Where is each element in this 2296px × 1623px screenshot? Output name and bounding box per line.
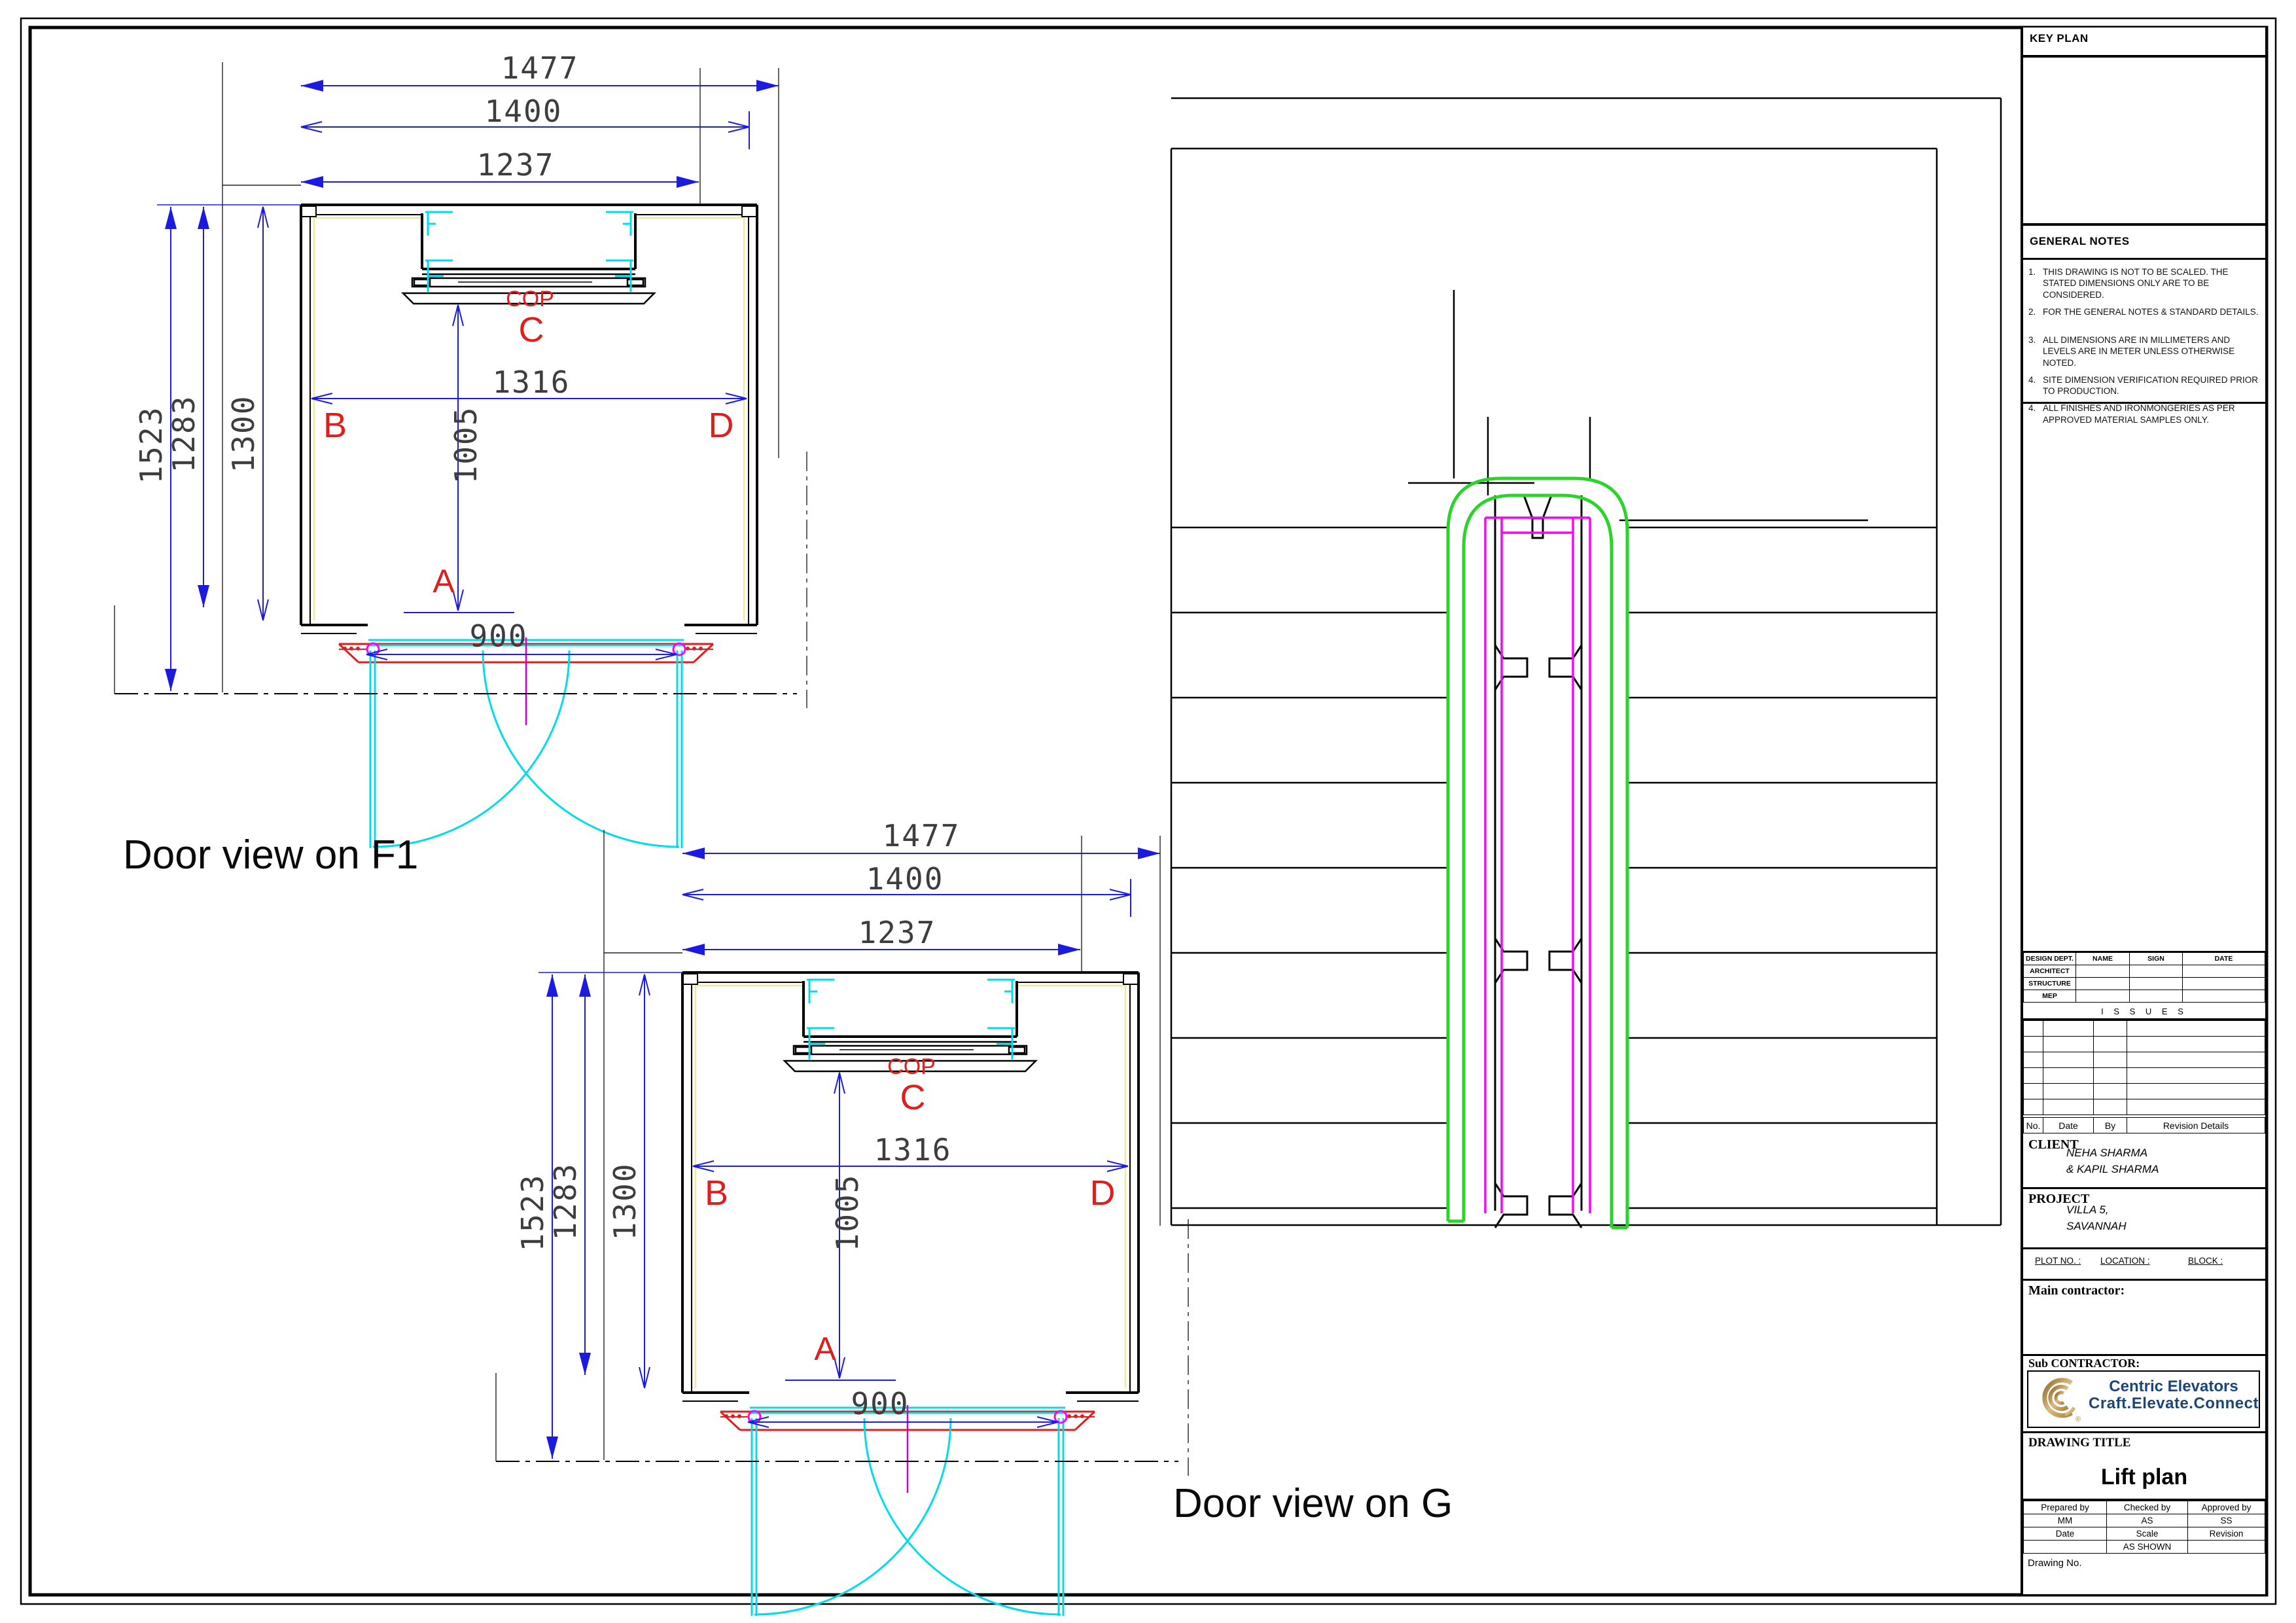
position-markers: COP C B D A bbox=[323, 287, 734, 599]
marker-cop: COP bbox=[506, 287, 554, 312]
drawing-sheet: 1477 1400 1237 1316 900 1523 1283 1300 1… bbox=[0, 0, 2296, 1623]
client-line2: & KAPIL SHARMA bbox=[2066, 1162, 2159, 1178]
cell-empty bbox=[2183, 965, 2265, 978]
col-sign: SIGN bbox=[2130, 953, 2183, 965]
cell-empty bbox=[2094, 1021, 2127, 1037]
prepared-by-value: MM bbox=[2024, 1514, 2107, 1527]
registered-mark: ® bbox=[2075, 1416, 2081, 1423]
stair-shaft-plan bbox=[1171, 98, 2001, 1228]
block-label: BLOCK : bbox=[2188, 1256, 2223, 1266]
col-date: DATE bbox=[2183, 953, 2265, 965]
rev-details-label: Revision Details bbox=[2127, 1118, 2265, 1133]
door-view-plan: 1477 1400 1237 1316 900 1523 1283 1300 1… bbox=[115, 50, 807, 848]
logo-line2: Craft.Elevate.Connect bbox=[2089, 1395, 2259, 1412]
dim-1316: 1316 bbox=[493, 365, 571, 400]
note-num: 2. bbox=[2028, 306, 2043, 317]
note-text: ALL DIMENSIONS ARE IN MILLIMETERS AND LE… bbox=[2043, 334, 2261, 368]
shaft-rail-magenta bbox=[1485, 518, 1590, 1213]
note-text: SITE DIMENSION VERIFICATION REQUIRED PRI… bbox=[2043, 374, 2261, 397]
sub-contractor-section: Sub CONTRACTOR: ® Centric Elevators bbox=[2023, 1356, 2265, 1433]
key-plan-box bbox=[2023, 58, 2265, 226]
cell-empty bbox=[2076, 978, 2130, 990]
note-text: THIS DRAWING IS NOT TO BE SCALED. THE ST… bbox=[2043, 266, 2261, 300]
cell-empty bbox=[2094, 1037, 2127, 1052]
door-view-g-instance bbox=[496, 818, 1188, 1616]
dim-1477: 1477 bbox=[501, 50, 579, 86]
plot-row: PLOT NO. : LOCATION : BLOCK : bbox=[2023, 1249, 2265, 1281]
cell-empty bbox=[2094, 1068, 2127, 1084]
cell-empty bbox=[2043, 1037, 2094, 1052]
cell-empty bbox=[2024, 1021, 2043, 1037]
view-title-g: Door view on G bbox=[1173, 1481, 1453, 1526]
marker-c: C bbox=[519, 310, 544, 349]
cell-empty bbox=[2183, 990, 2265, 1003]
note-num: 3. bbox=[2028, 334, 2043, 368]
row-architect: ARCHITECT bbox=[2024, 965, 2076, 978]
approved-by-label: Approved by bbox=[2188, 1501, 2265, 1514]
drawing-title-section: DRAWING TITLE Lift plan bbox=[2023, 1433, 2265, 1501]
cab-walls bbox=[301, 205, 757, 633]
general-notes-label: GENERAL NOTES bbox=[2023, 226, 2265, 248]
cell-empty bbox=[2043, 1068, 2094, 1084]
dim-1300: 1300 bbox=[226, 395, 261, 473]
checked-by-value: AS bbox=[2107, 1514, 2188, 1527]
drawing-no-section: Drawing No. bbox=[2023, 1554, 2265, 1592]
rev-date-label: Date bbox=[2043, 1118, 2094, 1133]
door-bracket-icons bbox=[425, 212, 633, 292]
cell-empty bbox=[2024, 1084, 2043, 1099]
col-design-dept: DESIGN DEPT. bbox=[2024, 953, 2076, 965]
extension-lines bbox=[115, 62, 807, 708]
cell-empty bbox=[2130, 990, 2183, 1003]
cad-canvas: 1477 1400 1237 1316 900 1523 1283 1300 1… bbox=[0, 0, 2296, 1623]
spare-box bbox=[2023, 404, 2265, 952]
scale-label: Scale bbox=[2107, 1527, 2188, 1541]
row-mep: MEP bbox=[2024, 990, 2076, 1003]
cell-empty bbox=[2043, 1052, 2094, 1068]
approved-by-value: SS bbox=[2188, 1514, 2265, 1527]
note-item: 2.FOR THE GENERAL NOTES & STANDARD DETAI… bbox=[2028, 306, 2261, 317]
dim-1237: 1237 bbox=[477, 147, 555, 183]
shaft-walls bbox=[1495, 495, 1581, 1228]
contractor-logo-text: Centric Elevators Craft.Elevate.Connect bbox=[2089, 1378, 2259, 1413]
marker-b: B bbox=[323, 406, 347, 445]
note-item: 3.ALL DIMENSIONS ARE IN MILLIMETERS AND … bbox=[2028, 334, 2261, 368]
design-dept-table: DESIGN DEPT. NAME SIGN DATE ARCHITECT ST… bbox=[2023, 952, 2265, 1003]
general-notes-header: GENERAL NOTES bbox=[2023, 226, 2265, 260]
dimension-texts: 1477 1400 1237 1316 900 1523 1283 1300 1… bbox=[133, 50, 578, 654]
dim-1523: 1523 bbox=[133, 406, 169, 484]
marker-d: D bbox=[709, 406, 734, 445]
date-value bbox=[2024, 1541, 2107, 1554]
cell-empty bbox=[2094, 1052, 2127, 1068]
cell-empty bbox=[2127, 1084, 2265, 1099]
dim-1005: 1005 bbox=[448, 406, 484, 484]
cell-empty bbox=[2043, 1099, 2094, 1115]
issues-band: I S S U E S bbox=[2023, 1003, 2265, 1020]
key-plan-header: KEY PLAN bbox=[2023, 27, 2265, 58]
cell-empty bbox=[2183, 978, 2265, 990]
cell-empty bbox=[2024, 1037, 2043, 1052]
contractor-logo-box: ® Centric Elevators Craft.Elevate.Connec… bbox=[2027, 1370, 2260, 1428]
cell-empty bbox=[2024, 1052, 2043, 1068]
cell-empty bbox=[2076, 990, 2130, 1003]
title-block: KEY PLAN GENERAL NOTES 1.THIS DRAWING IS… bbox=[2021, 27, 2265, 1594]
col-name: NAME bbox=[2076, 953, 2130, 965]
cell-empty bbox=[2024, 1099, 2043, 1115]
cell-empty bbox=[2127, 1068, 2265, 1084]
client-line1: NEHA SHARMA bbox=[2066, 1145, 2159, 1162]
row-structure: STRUCTURE bbox=[2024, 978, 2076, 990]
revision-value bbox=[2188, 1541, 2265, 1554]
note-item: 1.THIS DRAWING IS NOT TO BE SCALED. THE … bbox=[2028, 266, 2261, 300]
date-label: Date bbox=[2024, 1527, 2107, 1541]
shaft-guide-green bbox=[1448, 478, 1627, 1228]
note-item: 4.SITE DIMENSION VERIFICATION REQUIRED P… bbox=[2028, 374, 2261, 397]
client-value: NEHA SHARMA & KAPIL SHARMA bbox=[2066, 1145, 2159, 1177]
general-notes-box: 1.THIS DRAWING IS NOT TO BE SCALED. THE … bbox=[2023, 260, 2265, 404]
cell-empty bbox=[2094, 1084, 2127, 1099]
cell-empty bbox=[2094, 1099, 2127, 1115]
revision-footer: No. Date By Revision Details bbox=[2023, 1117, 2265, 1135]
dimension-arrows bbox=[165, 80, 779, 691]
stair-walls bbox=[1171, 98, 2001, 1225]
cell-empty bbox=[2127, 1099, 2265, 1115]
project-line2: SAVANNAH bbox=[2066, 1219, 2127, 1235]
prepared-by-label: Prepared by bbox=[2024, 1501, 2107, 1514]
dimension-lines bbox=[171, 86, 779, 691]
location-label: LOCATION : bbox=[2100, 1256, 2150, 1266]
cell-empty bbox=[2076, 965, 2130, 978]
cell-empty bbox=[2043, 1084, 2094, 1099]
plot-no-label: PLOT NO. : bbox=[2035, 1256, 2081, 1266]
revision-label: Revision bbox=[2188, 1527, 2265, 1541]
cell-empty bbox=[2127, 1037, 2265, 1052]
dim-900: 900 bbox=[469, 618, 527, 654]
client-section: CLIENT NEHA SHARMA & KAPIL SHARMA bbox=[2023, 1135, 2265, 1189]
main-contractor-section: Main contractor: bbox=[2023, 1281, 2265, 1356]
cell-empty bbox=[2130, 978, 2183, 990]
cell-empty bbox=[2130, 965, 2183, 978]
note-num: 4. bbox=[2028, 374, 2043, 397]
note-num: 1. bbox=[2028, 266, 2043, 300]
signature-grid: Prepared by Checked by Approved by MM AS… bbox=[2023, 1501, 2265, 1554]
project-line1: VILLA 5, bbox=[2066, 1202, 2127, 1219]
cell-empty bbox=[2127, 1021, 2265, 1037]
cell-empty bbox=[2024, 1068, 2043, 1084]
project-section: PROJECT VILLA 5, SAVANNAH bbox=[2023, 1189, 2265, 1249]
rev-by-label: By bbox=[2094, 1118, 2127, 1133]
marker-a: A bbox=[433, 563, 455, 599]
drawing-title-label: DRAWING TITLE bbox=[2028, 1436, 2130, 1450]
project-value: VILLA 5, SAVANNAH bbox=[2066, 1202, 2127, 1234]
dim-1400: 1400 bbox=[485, 94, 563, 129]
key-plan-label: KEY PLAN bbox=[2023, 27, 2265, 45]
view-title-f1: Door view on F1 bbox=[123, 832, 418, 878]
cell-empty bbox=[2043, 1021, 2094, 1037]
dim-1283: 1283 bbox=[166, 395, 202, 473]
scale-value: AS SHOWN bbox=[2107, 1541, 2188, 1554]
main-contractor-label: Main contractor: bbox=[2028, 1283, 2125, 1298]
note-text: FOR THE GENERAL NOTES & STANDARD DETAILS… bbox=[2043, 306, 2261, 317]
revision-grid bbox=[2023, 1020, 2265, 1117]
drawing-no-label: Drawing No. bbox=[2028, 1558, 2082, 1569]
rev-no-label: No. bbox=[2024, 1118, 2043, 1133]
checked-by-label: Checked by bbox=[2107, 1501, 2188, 1514]
logo-line1: Centric Elevators bbox=[2089, 1378, 2259, 1395]
centric-elevators-logo-icon: ® bbox=[2028, 1372, 2087, 1427]
drawing-title-value: Lift plan bbox=[2023, 1465, 2265, 1490]
cell-empty bbox=[2127, 1052, 2265, 1068]
sub-contractor-label: Sub CONTRACTOR: bbox=[2028, 1357, 2140, 1370]
issues-label: I S S U E S bbox=[2101, 1007, 2187, 1016]
